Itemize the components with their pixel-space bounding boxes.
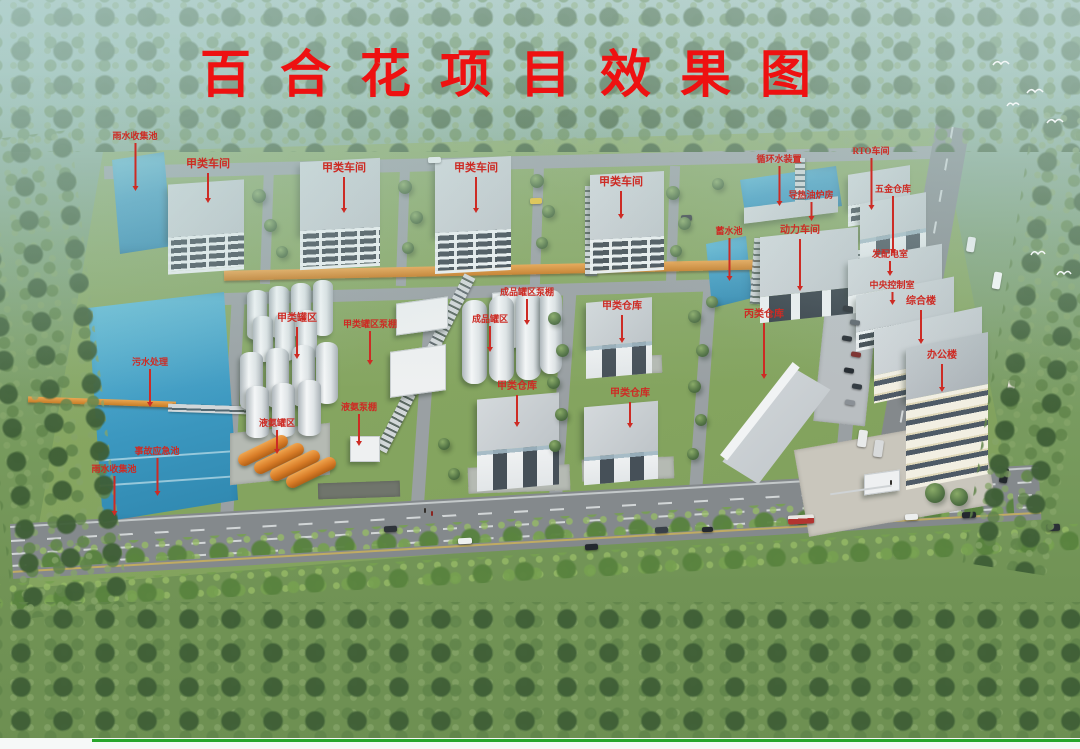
label-arrow: [891, 292, 893, 303]
site-label-text: 综合楼: [906, 296, 936, 307]
label-arrow: [629, 402, 631, 426]
site-label-发配电室: 发配电室: [872, 250, 908, 274]
site-label-text: 循环水装置: [756, 154, 801, 164]
label-arrow: [892, 196, 894, 252]
site-label-text: 成品罐区: [472, 314, 508, 324]
site-label-text: 甲类车间: [322, 162, 366, 174]
site-label-text: 雨水收集池: [91, 464, 136, 474]
site-label-text: 甲类车间: [454, 162, 498, 174]
site-label-text: 导热油炉房: [788, 190, 833, 200]
site-label-甲类仓库: 甲类仓库: [610, 389, 650, 426]
page-title: 百合花项目效果图: [200, 48, 840, 104]
label-arrow: [620, 191, 622, 217]
site-label-液氨罐区: 液氨罐区: [259, 419, 295, 452]
label-arrow: [489, 326, 491, 350]
label-arrow: [516, 395, 518, 425]
site-label-text: 液氨罐区: [259, 418, 295, 428]
site-label-甲类车间: 甲类车间: [322, 163, 366, 211]
site-label-text: RTO车间: [852, 146, 889, 156]
site-label-text: 甲类仓库: [602, 301, 642, 312]
site-label-text: 成品罐区泵棚: [500, 287, 554, 297]
label-arrow: [728, 238, 730, 279]
site-label-text: 蓄水池: [715, 226, 742, 236]
site-label-text: 中央控制室: [869, 280, 914, 290]
site-label-甲类仓库: 甲类仓库: [497, 382, 537, 425]
label-arrow: [156, 458, 158, 494]
site-label-五金仓库: 五金仓库: [875, 185, 911, 252]
label-arrow: [763, 323, 765, 377]
site-label-成品罐区泵棚: 成品罐区泵棚: [500, 288, 554, 323]
label-arrow: [134, 143, 136, 189]
site-label-蓄水池: 蓄水池: [715, 227, 742, 279]
label-arrow: [113, 476, 115, 514]
label-arrow: [870, 158, 872, 208]
site-label-事故应急池: 事故应急池: [134, 447, 179, 494]
site-label-甲类车间: 甲类车间: [599, 177, 643, 217]
site-label-污水处理: 污水处理: [132, 358, 168, 405]
label-arrow: [941, 364, 943, 390]
label-arrow: [889, 261, 891, 274]
label-arrow: [778, 166, 780, 204]
site-label-甲类罐区: 甲类罐区: [277, 314, 317, 357]
label-layer: 雨水收集池甲类车间甲类车间甲类车间甲类车间循环水装置RTO车间五金仓库导热油炉房…: [0, 0, 1080, 749]
label-arrow: [526, 299, 528, 323]
label-arrow: [369, 331, 371, 363]
label-arrow: [343, 177, 345, 211]
site-label-丙类仓库: 丙类仓库: [744, 310, 784, 377]
site-label-text: 发配电室: [872, 249, 908, 259]
site-label-text: 五金仓库: [875, 184, 911, 194]
site-label-text: 甲类车间: [599, 176, 643, 188]
label-arrow: [920, 310, 922, 342]
site-label-甲类车间: 甲类车间: [454, 163, 498, 211]
label-arrow: [475, 177, 477, 211]
label-arrow: [207, 173, 209, 201]
site-label-综合楼: 综合楼: [906, 297, 936, 342]
label-arrow: [149, 369, 151, 405]
site-label-text: 甲类仓库: [610, 388, 650, 399]
site-label-办公楼: 办公楼: [927, 351, 957, 390]
site-label-液氨泵棚: 液氨泵棚: [341, 403, 377, 444]
bottom-green-line: [92, 739, 1080, 742]
label-arrow: [296, 327, 298, 357]
site-label-雨水收集池: 雨水收集池: [91, 465, 136, 514]
site-label-text: 甲类仓库: [497, 381, 537, 392]
site-label-动力车间: 动力车间: [780, 226, 820, 289]
site-label-雨水收集池: 雨水收集池: [112, 132, 157, 189]
site-label-text: 污水处理: [132, 357, 168, 367]
site-label-甲类车间: 甲类车间: [186, 159, 230, 201]
site-label-text: 办公楼: [927, 350, 957, 361]
site-label-text: 丙类仓库: [744, 309, 784, 320]
site-label-成品罐区: 成品罐区: [472, 315, 508, 350]
site-label-text: 雨水收集池: [112, 131, 157, 141]
site-label-text: 液氨泵棚: [341, 402, 377, 412]
label-arrow: [276, 430, 278, 452]
site-label-甲类仓库: 甲类仓库: [602, 302, 642, 341]
label-arrow: [810, 202, 812, 219]
label-arrow: [799, 239, 801, 289]
site-label-甲类罐区泵棚: 甲类罐区泵棚: [343, 320, 397, 363]
label-arrow: [358, 414, 360, 444]
label-arrow: [621, 315, 623, 341]
site-label-导热油炉房: 导热油炉房: [788, 191, 833, 219]
site-label-text: 动力车间: [780, 225, 820, 236]
site-label-text: 甲类罐区: [277, 313, 317, 324]
site-label-text: 事故应急池: [134, 446, 179, 456]
site-label-text: 甲类罐区泵棚: [343, 319, 397, 329]
aerial-site-rendering: 雨水收集池甲类车间甲类车间甲类车间甲类车间循环水装置RTO车间五金仓库导热油炉房…: [0, 0, 1080, 749]
site-label-text: 甲类车间: [186, 158, 230, 170]
